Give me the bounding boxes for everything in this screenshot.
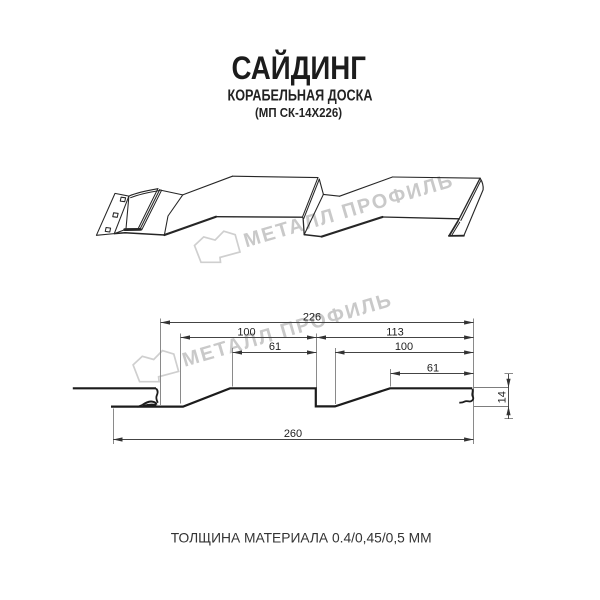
svg-text:226: 226	[303, 312, 321, 324]
svg-text:61: 61	[269, 341, 281, 353]
svg-text:100: 100	[237, 327, 255, 339]
svg-text:113: 113	[386, 327, 404, 339]
svg-text:100: 100	[395, 341, 413, 353]
svg-text:ТОЛЩИНА МАТЕРИАЛА 0.4/0,45/0,5: ТОЛЩИНА МАТЕРИАЛА 0.4/0,45/0,5 ММ	[171, 530, 432, 546]
svg-text:61: 61	[427, 363, 439, 375]
svg-text:КОРАБЕЛЬНАЯ ДОСКА: КОРАБЕЛЬНАЯ ДОСКА	[228, 87, 373, 104]
svg-text:14: 14	[496, 391, 508, 403]
svg-text:САЙДИНГ: САЙДИНГ	[232, 48, 367, 86]
svg-text:(МП СК-14Х226): (МП СК-14Х226)	[255, 105, 342, 120]
svg-text:260: 260	[284, 428, 302, 440]
